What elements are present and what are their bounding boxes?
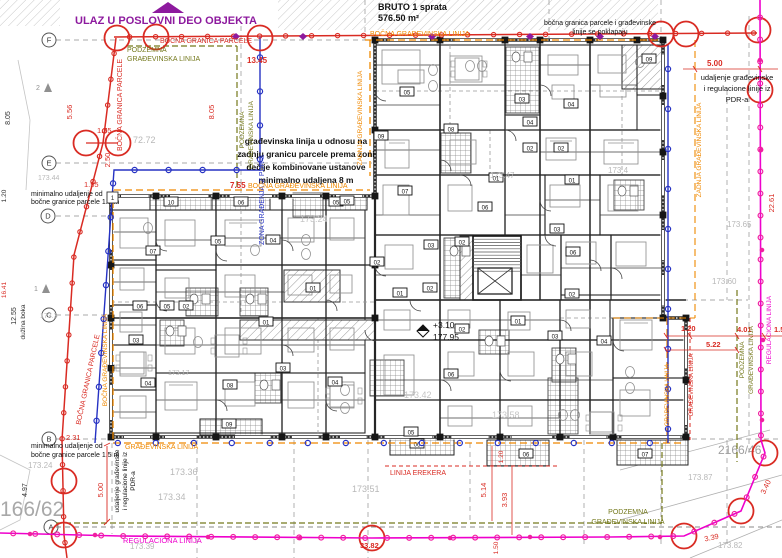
- svg-text:1.55: 1.55: [84, 180, 99, 189]
- svg-text:03: 03: [554, 228, 561, 234]
- svg-text:07: 07: [150, 250, 157, 256]
- svg-text:GRAĐEVINSKA LINIJA: GRAĐEVINSKA LINIJA: [127, 56, 200, 63]
- svg-text:bočne granice parcele 1.5 m: bočne granice parcele 1.5 m: [31, 199, 119, 206]
- svg-text:03: 03: [552, 335, 559, 341]
- svg-text:8.05: 8.05: [207, 105, 216, 120]
- svg-text:1.75: 1.75: [97, 126, 112, 135]
- svg-text:minimalno udaljenje od: minimalno udaljenje od: [31, 443, 103, 450]
- svg-text:173.58: 173.58: [492, 410, 520, 420]
- svg-text:2.50: 2.50: [103, 153, 112, 168]
- svg-text:REGULACIONA LINIJA: REGULACIONA LINIJA: [766, 295, 773, 364]
- svg-text:06: 06: [448, 373, 455, 379]
- svg-text:166/62: 166/62: [0, 498, 64, 521]
- svg-text:06: 06: [238, 201, 245, 207]
- svg-text:173.51: 173.51: [352, 484, 380, 494]
- svg-text:12.55: 12.55: [11, 307, 18, 325]
- svg-text:173.24: 173.24: [28, 461, 53, 470]
- svg-text:06: 06: [570, 251, 577, 257]
- svg-text:7.55: 7.55: [230, 181, 246, 190]
- svg-text:5.00: 5.00: [96, 483, 105, 498]
- svg-text:D: D: [45, 212, 51, 221]
- svg-text:01: 01: [397, 292, 404, 298]
- svg-text:173.42: 173.42: [404, 390, 432, 400]
- svg-text:REGULACIONA LINIJA: REGULACIONA LINIJA: [123, 536, 202, 545]
- svg-text:02: 02: [558, 147, 565, 153]
- svg-text:1.20: 1.20: [1, 189, 8, 202]
- svg-text:08: 08: [227, 384, 234, 390]
- svg-text:02: 02: [183, 305, 190, 311]
- svg-text:F: F: [47, 36, 52, 45]
- svg-text:PODZEMNA: PODZEMNA: [239, 111, 246, 149]
- svg-text:173.3: 173.3: [40, 313, 58, 320]
- svg-text:PDR-a: PDR-a: [130, 471, 137, 491]
- svg-text:PODZEMNA: PODZEMNA: [608, 509, 648, 516]
- svg-text:3.93: 3.93: [500, 493, 509, 508]
- svg-text:03: 03: [519, 98, 526, 104]
- svg-text:173.82: 173.82: [718, 541, 743, 550]
- svg-text:173.36: 173.36: [170, 467, 198, 477]
- svg-text:ZADNJA GRAĐEVINSKA LINIJA: ZADNJA GRAĐEVINSKA LINIJA: [357, 70, 364, 165]
- svg-text:i regulacione linije iz: i regulacione linije iz: [122, 452, 129, 510]
- svg-text:5.00: 5.00: [707, 59, 723, 68]
- svg-text:PODZEMNA: PODZEMNA: [127, 47, 167, 54]
- svg-text:ULAZ U POSLOVNI DEO OBJEKTA: ULAZ U POSLOVNI DEO OBJEKTA: [75, 15, 257, 27]
- svg-text:173.34: 173.34: [158, 492, 186, 502]
- svg-text:1.50: 1.50: [493, 541, 500, 554]
- svg-text:72.72: 72.72: [133, 135, 156, 145]
- svg-text:BOČNA GRAĐEVINSKA LINIJA: BOČNA GRAĐEVINSKA LINIJA: [370, 29, 470, 38]
- svg-text:173.44: 173.44: [38, 175, 60, 182]
- svg-text:1: 1: [111, 195, 115, 202]
- svg-text:udaljenje građevinske: udaljenje građevinske: [701, 73, 774, 82]
- svg-text:04: 04: [270, 239, 277, 245]
- svg-text:04: 04: [332, 381, 339, 387]
- svg-text:GRAĐEVINSKA LINIJA: GRAĐEVINSKA LINIJA: [248, 100, 255, 169]
- svg-text:08: 08: [448, 128, 455, 134]
- svg-text:173.4: 173.4: [608, 166, 629, 175]
- svg-text:06: 06: [482, 206, 489, 212]
- svg-text:GRAĐEVINSKA LINIJA: GRAĐEVINSKA LINIJA: [665, 364, 671, 427]
- svg-text:01: 01: [263, 321, 270, 327]
- svg-text:5.22: 5.22: [706, 340, 721, 349]
- svg-text:4.97: 4.97: [22, 483, 29, 497]
- svg-text:13.45: 13.45: [247, 56, 268, 65]
- svg-text:03: 03: [280, 367, 287, 373]
- svg-text:02: 02: [427, 287, 434, 293]
- svg-text:dužina boka: dužina boka: [20, 304, 27, 339]
- svg-text:2: 2: [36, 85, 40, 92]
- svg-text:5.56: 5.56: [65, 105, 74, 120]
- svg-text:177.95: 177.95: [433, 332, 459, 342]
- svg-text:173.17: 173.17: [168, 370, 190, 377]
- svg-text:02: 02: [527, 147, 534, 153]
- svg-text:02: 02: [459, 241, 466, 247]
- svg-text:173.47: 173.47: [490, 171, 515, 180]
- svg-text:01: 01: [569, 179, 576, 185]
- svg-text:01: 01: [515, 320, 522, 326]
- svg-text:+3.10: +3.10: [433, 320, 455, 330]
- svg-text:173.87: 173.87: [688, 473, 713, 482]
- svg-text:E: E: [46, 159, 51, 168]
- svg-text:05: 05: [215, 240, 222, 246]
- svg-text:PODZEMNA: PODZEMNA: [739, 341, 746, 379]
- svg-text:07: 07: [642, 453, 649, 459]
- svg-text:1: 1: [34, 286, 38, 293]
- svg-text:ZADNJA GRAĐEVINSKA LINIJA: ZADNJA GRAĐEVINSKA LINIJA: [696, 102, 703, 197]
- svg-text:06: 06: [137, 305, 144, 311]
- svg-text:GRAĐEVINSKA LINIJA: GRAĐEVINSKA LINIJA: [689, 354, 695, 417]
- svg-text:10: 10: [168, 201, 175, 207]
- svg-text:BOČNA GRANICA PARCELE: BOČNA GRANICA PARCELE: [160, 36, 252, 45]
- svg-text:03: 03: [133, 339, 140, 345]
- svg-text:1.20: 1.20: [498, 450, 505, 463]
- svg-text:04: 04: [145, 382, 152, 388]
- svg-text:i regulacione linije iz: i regulacione linije iz: [703, 84, 770, 93]
- svg-text:građevinska linija u odnosu na: građevinska linija u odnosu na: [245, 136, 368, 146]
- svg-text:BRUTO 1 sprata: BRUTO 1 sprata: [378, 2, 448, 12]
- svg-text:ZONA GRAĐENJA IZ PDR-a: ZONA GRAĐENJA IZ PDR-a: [259, 155, 266, 245]
- svg-text:05: 05: [344, 200, 351, 206]
- svg-text:8.05: 8.05: [5, 111, 12, 125]
- svg-text:1.50: 1.50: [774, 325, 782, 334]
- svg-text:05: 05: [404, 91, 411, 97]
- svg-text:576.50 m²: 576.50 m²: [378, 13, 419, 23]
- svg-text:udaljenje građevinske: udaljenje građevinske: [114, 449, 121, 512]
- svg-text:173.24: 173.24: [300, 214, 328, 224]
- svg-text:04: 04: [527, 121, 534, 127]
- svg-text:bočna granica parcele i građev: bočna granica parcele i građevinske: [544, 20, 656, 27]
- svg-text:09: 09: [378, 135, 385, 141]
- svg-text:03: 03: [428, 244, 435, 250]
- svg-text:173.65: 173.65: [727, 220, 752, 229]
- svg-text:33.82: 33.82: [360, 541, 379, 550]
- svg-text:02: 02: [374, 261, 381, 267]
- svg-text:09: 09: [226, 423, 233, 429]
- svg-text:bočne granice parcele 1.5 m: bočne granice parcele 1.5 m: [31, 452, 119, 459]
- svg-text:LINIJA EREKERA: LINIJA EREKERA: [390, 470, 446, 477]
- svg-text:05: 05: [164, 305, 171, 311]
- svg-text:07: 07: [402, 190, 409, 196]
- svg-text:16.41: 16.41: [1, 281, 8, 298]
- svg-text:173.60: 173.60: [712, 277, 737, 286]
- svg-text:06: 06: [523, 453, 530, 459]
- svg-text:zadnju granicu parcele prema z: zadnju granicu parcele prema zoni: [237, 149, 374, 159]
- svg-text:5.14: 5.14: [479, 483, 488, 498]
- svg-text:PDR-a: PDR-a: [726, 95, 749, 104]
- svg-text:1.20: 1.20: [681, 324, 696, 333]
- svg-text:04: 04: [601, 340, 608, 346]
- svg-text:01: 01: [310, 287, 317, 293]
- svg-text:02: 02: [569, 293, 576, 299]
- svg-text:09: 09: [646, 58, 653, 64]
- svg-text:BOČNA GRAĐEVINSKA LINIJA: BOČNA GRAĐEVINSKA LINIJA: [248, 181, 348, 190]
- svg-text:linije se poklapaju: linije se poklapaju: [572, 29, 627, 36]
- svg-text:GRAĐEVINSKA LINIJA: GRAĐEVINSKA LINIJA: [591, 519, 664, 526]
- svg-text:02: 02: [459, 328, 466, 334]
- svg-text:22.61: 22.61: [767, 194, 776, 213]
- svg-text:minimalno udaljenje od: minimalno udaljenje od: [31, 191, 103, 198]
- svg-text:05: 05: [333, 201, 340, 207]
- svg-text:04: 04: [568, 103, 575, 109]
- svg-text:GRAĐEVINSKA LINIJA: GRAĐEVINSKA LINIJA: [125, 444, 198, 451]
- svg-text:BOČNA GRAĐEVINSKA LINIJA: BOČNA GRAĐEVINSKA LINIJA: [100, 313, 109, 406]
- svg-text:05: 05: [408, 431, 415, 437]
- svg-text:2.31: 2.31: [66, 433, 81, 442]
- svg-text:BOČNA GRANICA PARCELE: BOČNA GRANICA PARCELE: [115, 59, 124, 151]
